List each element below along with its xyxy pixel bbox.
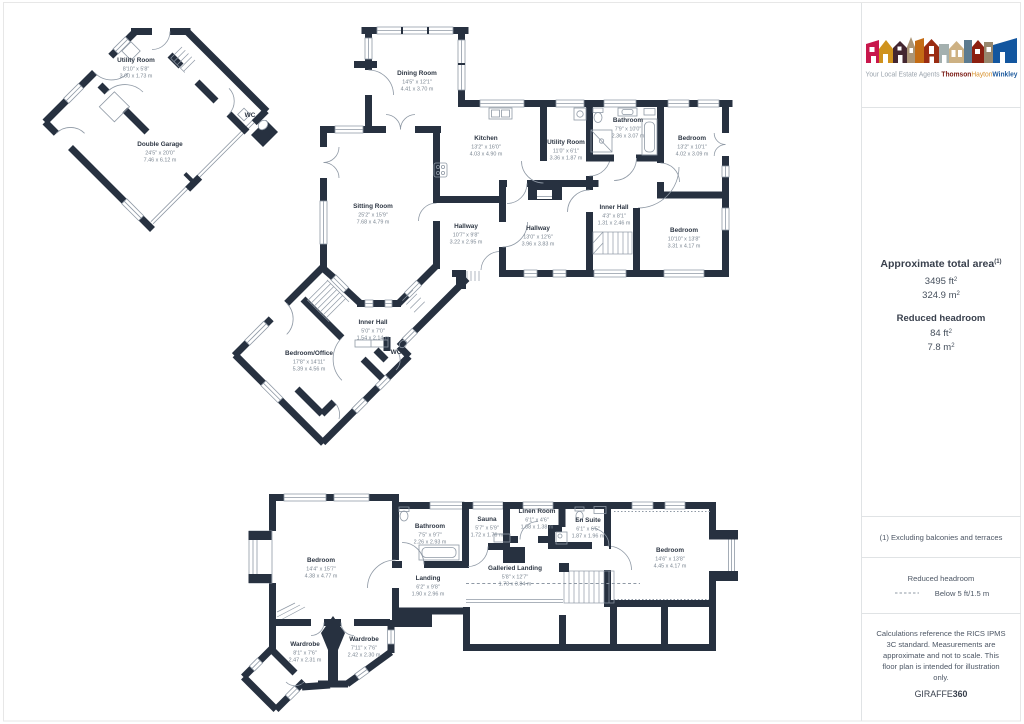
svg-text:Landing: Landing (416, 575, 441, 582)
svg-text:6'2" x 9'8": 6'2" x 9'8" (416, 585, 440, 591)
svg-text:1.73 x 3.84 m: 1.73 x 3.84 m (499, 582, 532, 588)
svg-text:(1) Excluding balconies and te: (1) Excluding balconies and terraces (880, 533, 1003, 542)
svg-text:1.90 x 2.96 m: 1.90 x 2.96 m (412, 592, 445, 598)
svg-text:4.38 x 4.77 m: 4.38 x 4.77 m (305, 574, 338, 580)
svg-text:5'7" x 5'9": 5'7" x 5'9" (475, 526, 499, 532)
svg-text:2.42 x 2.30 m: 2.42 x 2.30 m (348, 653, 381, 659)
svg-text:4.45 x 4.17 m: 4.45 x 4.17 m (654, 564, 687, 570)
svg-text:13'2" x 16'0": 13'2" x 16'0" (471, 145, 501, 151)
svg-text:approximate and not to scale.: approximate and not to scale. This (883, 651, 999, 660)
svg-text:Bathroom: Bathroom (613, 117, 643, 124)
svg-text:Bedroom: Bedroom (678, 135, 706, 142)
svg-text:only.: only. (933, 673, 948, 682)
svg-text:2.47 x 2.31 m: 2.47 x 2.31 m (289, 658, 322, 664)
svg-text:Approximate total area(1): Approximate total area(1) (880, 258, 1001, 270)
svg-text:4.41 x 3.70 m: 4.41 x 3.70 m (401, 87, 434, 93)
svg-text:Wardrobe: Wardrobe (290, 641, 320, 648)
svg-text:Utility Room: Utility Room (117, 57, 155, 64)
svg-text:1.87 x 1.96 m: 1.87 x 1.96 m (572, 534, 605, 540)
svg-text:5'0" x 7'0": 5'0" x 7'0" (361, 329, 385, 335)
svg-text:Reduced headroom: Reduced headroom (897, 313, 986, 324)
svg-text:En Suite: En Suite (575, 517, 601, 524)
svg-text:2.36 x 3.07 m: 2.36 x 3.07 m (612, 134, 645, 140)
svg-text:Reduced headroom: Reduced headroom (908, 574, 975, 583)
svg-text:1.88 x 1.38 m: 1.88 x 1.38 m (521, 525, 554, 531)
svg-text:7.46 x 6.12 m: 7.46 x 6.12 m (144, 158, 177, 164)
svg-text:4.03 x 4.90 m: 4.03 x 4.90 m (470, 152, 503, 158)
svg-text:Inner Hall: Inner Hall (358, 319, 387, 326)
svg-text:1.31 x 2.46 m: 1.31 x 2.46 m (598, 221, 631, 227)
svg-text:7'5" x 9'7": 7'5" x 9'7" (418, 533, 442, 539)
svg-text:Dining Room: Dining Room (397, 70, 437, 77)
svg-text:13'0" x 12'6": 13'0" x 12'6" (523, 235, 553, 241)
svg-text:Galleried Landing: Galleried Landing (488, 565, 542, 572)
svg-text:Bedroom: Bedroom (307, 557, 335, 564)
svg-text:10'10" x 13'8": 10'10" x 13'8" (668, 237, 701, 243)
svg-text:24'5" x 20'0": 24'5" x 20'0" (145, 151, 175, 157)
svg-text:Linen Room: Linen Room (519, 508, 556, 515)
svg-text:5'8" x 12'7": 5'8" x 12'7" (502, 575, 529, 581)
svg-text:324.9 m2: 324.9 m2 (922, 290, 960, 301)
svg-text:3C standard. Measurements are: 3C standard. Measurements are (887, 640, 996, 649)
svg-text:13'2" x 10'1": 13'2" x 10'1" (677, 145, 707, 151)
svg-text:3495 ft2: 3495 ft2 (925, 276, 958, 287)
svg-text:3.36 x 1.87 m: 3.36 x 1.87 m (550, 156, 583, 162)
svg-text:Below 5 ft/1.5 m: Below 5 ft/1.5 m (935, 589, 989, 598)
svg-text:8'1" x 7'6": 8'1" x 7'6" (293, 651, 317, 657)
svg-text:1.72 x 1.76 m: 1.72 x 1.76 m (471, 533, 504, 539)
svg-text:Sitting Room: Sitting Room (353, 203, 393, 210)
svg-text:Kitchen: Kitchen (474, 135, 498, 142)
svg-text:8'10" x 5'8": 8'10" x 5'8" (123, 67, 150, 73)
svg-text:7'9" x 10'0": 7'9" x 10'0" (615, 127, 642, 133)
svg-text:Inner Hall: Inner Hall (599, 204, 628, 211)
svg-text:4'3" x 8'1": 4'3" x 8'1" (602, 214, 626, 220)
svg-text:5.39 x 4.56 m: 5.39 x 4.56 m (293, 367, 326, 373)
svg-text:25'2" x 15'9": 25'2" x 15'9" (358, 213, 388, 219)
svg-text:3.00 x 1.73 m: 3.00 x 1.73 m (120, 74, 153, 80)
svg-text:6'1" x 6'5": 6'1" x 6'5" (576, 527, 600, 533)
svg-text:Bedroom: Bedroom (656, 547, 684, 554)
svg-text:floor plan is intended for ill: floor plan is intended for illustration (882, 662, 999, 671)
svg-text:Double Garage: Double Garage (137, 141, 183, 148)
svg-text:WC: WC (391, 349, 402, 356)
svg-text:14'4" x 15'7": 14'4" x 15'7" (306, 567, 336, 573)
svg-text:Sauna: Sauna (477, 516, 497, 523)
svg-text:4.02 x 3.09 m: 4.02 x 3.09 m (676, 152, 709, 158)
svg-text:Wardrobe: Wardrobe (349, 636, 379, 643)
svg-text:6'1" x 4'6": 6'1" x 4'6" (525, 518, 549, 524)
svg-text:7'11" x 7'6": 7'11" x 7'6" (351, 646, 377, 652)
svg-text:Hallway: Hallway (526, 225, 550, 232)
svg-text:17'8" x 14'11": 17'8" x 14'11" (293, 360, 325, 366)
svg-text:WC: WC (245, 112, 256, 119)
svg-text:Your Local Estate Agents Thoms: Your Local Estate Agents ThomsonHaytonWi… (866, 70, 1019, 79)
svg-text:7.68 x 4.79 m: 7.68 x 4.79 m (357, 220, 390, 226)
svg-text:Bedroom: Bedroom (670, 227, 698, 234)
svg-text:Bedroom/Office: Bedroom/Office (285, 350, 333, 357)
svg-text:Calculations reference the RIC: Calculations reference the RICS IPMS (876, 629, 1005, 638)
svg-text:3.22 x 2.95 m: 3.22 x 2.95 m (450, 240, 483, 246)
svg-text:Utility Room: Utility Room (547, 139, 585, 146)
svg-text:3.31 x 4.17 m: 3.31 x 4.17 m (668, 244, 701, 250)
svg-text:11'0" x 6'1": 11'0" x 6'1" (553, 149, 579, 155)
svg-text:2.26 x 2.93 m: 2.26 x 2.93 m (414, 540, 447, 546)
svg-text:Hallway: Hallway (454, 223, 478, 230)
svg-text:GIRAFFE360: GIRAFFE360 (915, 689, 968, 699)
svg-text:1.54 x 2.14 m: 1.54 x 2.14 m (357, 336, 390, 342)
svg-text:14'6" x 13'8": 14'6" x 13'8" (655, 557, 685, 563)
svg-text:3.96 x 3.83 m: 3.96 x 3.83 m (522, 242, 555, 248)
svg-text:7.8 m2: 7.8 m2 (927, 342, 955, 353)
svg-text:10'7" x 9'8": 10'7" x 9'8" (453, 233, 480, 239)
svg-text:14'5" x 12'1": 14'5" x 12'1" (402, 80, 432, 86)
svg-text:Bathroom: Bathroom (415, 523, 445, 530)
